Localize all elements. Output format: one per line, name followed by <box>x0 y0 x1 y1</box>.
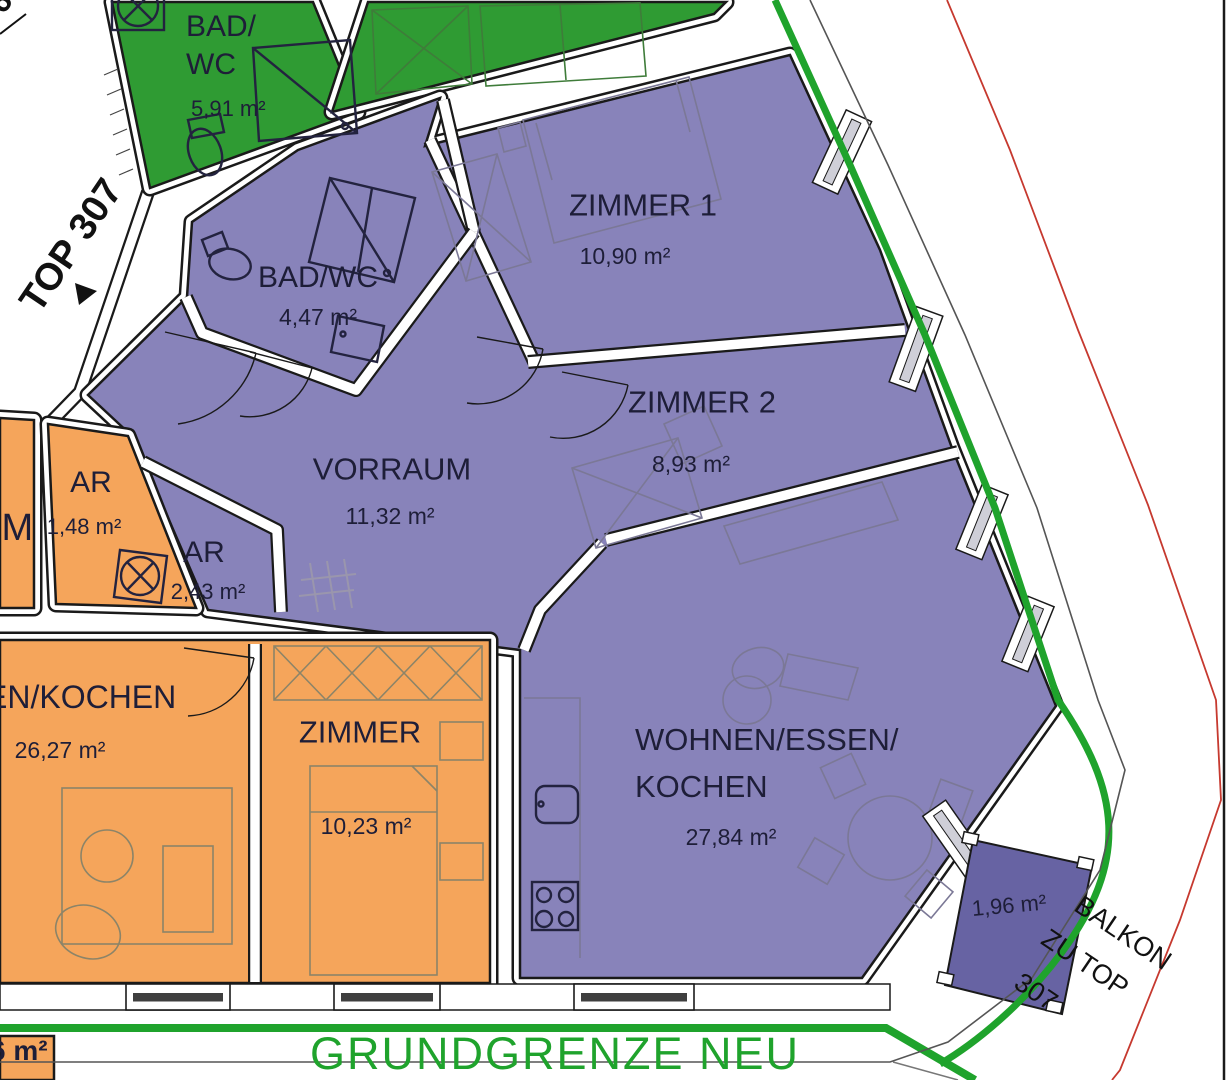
grundgrenze-label: GRUNDGRENZE NEU <box>310 1027 800 1080</box>
bottom-wall-windows <box>0 984 890 1010</box>
room-area-badwc: 4,47 m² <box>279 304 357 332</box>
room-label-ar-purple: AR <box>183 535 225 571</box>
floor-plan: BAD/ WC 5,91 m² BAD/WC 4,47 m² ZIMMER 1 … <box>0 0 1232 1080</box>
room-area-zimmer1: 10,90 m² <box>580 243 671 271</box>
room-label-wohnen-orange: EN/KOCHEN <box>0 678 176 716</box>
partial-label-um: UM <box>0 506 33 552</box>
room-label-zimmer1: ZIMMER 1 <box>569 186 717 223</box>
room-area-vorraum: 11,32 m² <box>345 503 434 531</box>
room-label-vorraum: VORRAUM <box>313 450 471 487</box>
room-area-ar-orange: 1,48 m² <box>47 514 122 540</box>
room-label-badwc: BAD/WC <box>258 260 378 296</box>
partial-label-6m2: 6 m² <box>0 1034 48 1068</box>
room-area-wohnen: 27,84 m² <box>686 824 777 852</box>
room-area-wohnen-orange: 26,27 m² <box>15 737 106 765</box>
top307-arrow-icon <box>75 283 97 305</box>
room-label-zimmer-orange: ZIMMER <box>299 713 421 750</box>
room-area-ar-purple: 2,43 m² <box>171 579 246 605</box>
room-label-zimmer2: ZIMMER 2 <box>628 383 776 420</box>
room-label-green-badwc: BAD/ WC <box>186 8 256 84</box>
room-area-green-badwc: 5,91 m² <box>191 96 266 122</box>
room-label-ar-orange: AR <box>70 465 112 501</box>
room-label-wohnen: WOHNEN/ESSEN/ KOCHEN <box>635 716 899 810</box>
room-area-zimmer2: 8,93 m² <box>652 451 730 479</box>
room-area-zimmer-orange: 10,23 m² <box>321 813 412 841</box>
